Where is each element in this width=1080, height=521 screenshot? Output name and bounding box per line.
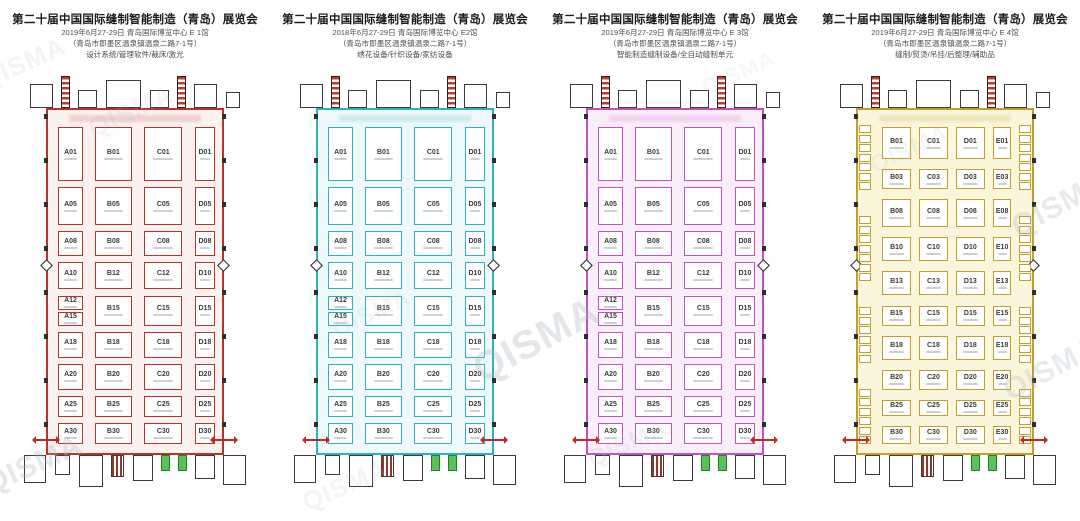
booth-subtext (104, 279, 123, 281)
booth-row: A10B12C12D10 (328, 262, 485, 289)
booth-subtext (423, 437, 443, 439)
booth-C05: C05 (144, 187, 182, 225)
booth-code: E03 (996, 174, 1008, 181)
booth-code: C08 (927, 208, 940, 215)
booth-cell: A18 (328, 332, 352, 358)
booth-B18: B18 (882, 336, 910, 360)
booth-B03: B03 (882, 169, 910, 189)
booth-code: B15 (647, 305, 660, 312)
booth-code: A08 (334, 238, 347, 245)
booth-code: B08 (377, 238, 390, 245)
booth-code: B30 (377, 428, 390, 435)
small-booth-cell (859, 182, 871, 190)
booth-code: D25 (469, 401, 482, 408)
booth-subtext (693, 314, 713, 316)
booth-subtext (740, 279, 750, 281)
booth-code: B08 (890, 208, 903, 215)
booth-cell: D18 (465, 332, 485, 358)
booth-subtext (644, 158, 663, 160)
booth-cell: C15 (684, 296, 722, 326)
booth-row: A18B18C18D18 (598, 332, 755, 358)
service-room (106, 80, 142, 108)
service-room (1033, 455, 1055, 485)
booth-B25: B25 (635, 396, 672, 417)
small-booth-cell (1019, 235, 1031, 243)
booth-subtext (998, 147, 1007, 149)
booth-cell: D18 (195, 332, 215, 358)
booth-subtext (926, 438, 940, 440)
booth-row: B30C30D30E30 (882, 426, 1011, 444)
service-room (618, 90, 637, 108)
booth-cell: A01 (58, 127, 82, 181)
booth-subtext (470, 158, 480, 160)
panel-address: （青岛市即墨区温泉镇温泉二路7-1号） (7, 40, 264, 50)
small-booth-cell (1019, 182, 1031, 190)
booth-D05: D05 (735, 187, 755, 225)
booth-subtext (374, 279, 393, 281)
hall-panel-e1: 第二十届中国国际缝制智能制造（青岛）展览会 2019年6月27-29日 青岛国际… (0, 0, 270, 521)
booth-code: D05 (469, 201, 482, 208)
booth-cell: D05 (465, 187, 485, 225)
booth-D05: D05 (465, 187, 485, 225)
booth-D01: D01 (735, 127, 755, 181)
booth-cell: A20 (328, 364, 352, 390)
booth-cell: E15 (993, 306, 1011, 326)
elevator-room (448, 455, 457, 471)
booth-code: B20 (647, 371, 660, 378)
service-room (376, 80, 412, 108)
booth-B30: B30 (365, 423, 402, 444)
booth-subtext (470, 348, 480, 350)
service-room (734, 84, 757, 108)
service-room (735, 455, 755, 479)
booth-subtext (153, 314, 173, 316)
booth-cell: A08 (328, 231, 352, 256)
small-booth-cell (859, 235, 871, 243)
booth-cell: B08 (882, 199, 910, 227)
booth-cell: C30 (919, 426, 947, 444)
booth-subtext (604, 247, 616, 249)
booth-cell: D05 (195, 187, 215, 225)
booth-C30: C30 (684, 423, 722, 444)
booth-cell: E30 (993, 426, 1011, 444)
booth-subtext (644, 279, 663, 281)
booth-code: C30 (427, 428, 440, 435)
booth-subtext (104, 437, 123, 439)
small-booth-cell (1019, 154, 1031, 162)
booth-subtext (693, 437, 713, 439)
top-structure (30, 68, 241, 108)
booth-cell: A05 (58, 187, 82, 225)
booth-cell: B13 (882, 271, 910, 295)
booth-cell: A10 (58, 262, 82, 289)
booth-C30: C30 (414, 423, 452, 444)
booth-E20: E20 (993, 370, 1011, 390)
booth-cell: C01 (414, 127, 452, 181)
small-booth-cell (1019, 254, 1031, 262)
service-room (865, 455, 880, 475)
booth-cell: A18 (58, 332, 82, 358)
booth-cell: A12A15 (598, 296, 622, 326)
booth-code: B10 (890, 244, 903, 251)
small-booth-cell (859, 135, 871, 143)
small-booth-cell (859, 154, 871, 162)
booth-subtext (693, 247, 713, 249)
booth-cell: B03 (882, 169, 910, 189)
booth-subtext (200, 380, 210, 382)
booth-code: D30 (964, 429, 977, 436)
booth-D08: D08 (465, 231, 485, 256)
service-room (78, 90, 97, 108)
booth-subtext (374, 210, 393, 212)
booth-E13: E13 (993, 271, 1011, 295)
service-room (921, 455, 934, 477)
booth-code: D18 (199, 339, 212, 346)
booth-cell: B18 (635, 332, 672, 358)
booth-row: A12A15B15C15D15 (328, 296, 485, 326)
small-booth-cell (1019, 317, 1031, 325)
stairs-icon (447, 76, 456, 108)
booth-subtext (470, 410, 480, 412)
service-room (325, 455, 340, 475)
booth-subtext (926, 217, 940, 219)
booth-C18: C18 (414, 332, 452, 358)
booth-cell: E01 (993, 127, 1011, 159)
booth-B20: B20 (882, 370, 910, 390)
booth-subtext (64, 210, 76, 212)
booth-subtext (334, 247, 346, 249)
booth-B15: B15 (882, 306, 910, 326)
booth-D25: D25 (735, 396, 755, 417)
booth-code: D10 (199, 270, 212, 277)
booth-D18: D18 (956, 336, 984, 360)
service-room (496, 92, 511, 108)
booth-row: B20C20D20E20 (882, 370, 1011, 390)
booth-cell: B20 (95, 364, 132, 390)
stairs-icon (61, 76, 70, 108)
booth-subtext (963, 438, 977, 440)
elevator-room (178, 455, 187, 471)
booth-subtext (104, 348, 123, 350)
booth-code: A30 (64, 428, 77, 435)
booth-row: B18C18D18E18 (882, 336, 1011, 360)
booth-A20: A20 (328, 364, 352, 390)
booth-subtext (998, 183, 1007, 185)
booth-cell: B12 (365, 262, 402, 289)
booth-C12: C12 (144, 262, 182, 289)
booth-D05: D05 (195, 187, 215, 225)
small-booth-cell (1019, 398, 1031, 406)
booth-cell: E20 (993, 370, 1011, 390)
booth-cell: D18 (735, 332, 755, 358)
service-room (834, 455, 856, 483)
booth-subtext (423, 314, 443, 316)
small-booth-cell (1019, 417, 1031, 425)
booth-D20: D20 (735, 364, 755, 390)
booth-code: E30 (996, 429, 1008, 436)
booth-subtext (334, 210, 346, 212)
booth-code: D20 (469, 371, 482, 378)
small-booth-cell (859, 408, 871, 416)
booth-cell: A25 (328, 396, 352, 417)
booth-subtext (423, 279, 443, 281)
booth-subtext (693, 348, 713, 350)
elevator-room (971, 455, 980, 471)
booth-A10: A10 (328, 262, 352, 289)
booth-A25: A25 (58, 396, 82, 417)
service-room (493, 455, 515, 485)
booth-B05: B05 (95, 187, 132, 225)
panel-title: 第二十届中国国际缝制智能制造（青岛）展览会 (270, 13, 540, 27)
booth-cell: C10 (919, 237, 947, 261)
booth-row: A20B20C20D20 (598, 364, 755, 390)
small-booth-cell (1019, 135, 1031, 143)
booth-code: A15 (604, 313, 617, 320)
booth-cell: A10 (328, 262, 352, 289)
small-booth-cell (859, 355, 871, 363)
service-room (889, 455, 913, 487)
booth-subtext (926, 147, 940, 149)
wall-ticks-right (1032, 114, 1036, 449)
booth-cell: D08 (956, 199, 984, 227)
booth-A15: A15 (598, 312, 622, 326)
booth-B30: B30 (95, 423, 132, 444)
booth-code: E25 (996, 402, 1008, 409)
booth-code: C25 (427, 401, 440, 408)
service-room (595, 455, 610, 475)
hall-content: B01C01D01E01B03C03D03E03B08C08D08E08B10C… (858, 110, 1032, 453)
booth-cell: C13 (919, 271, 947, 295)
exhibition-hall: A01B01C01D01A05B05C05D05A08B08C08D08A10B… (46, 108, 224, 455)
bottom-structure (564, 455, 785, 505)
booth-code: E01 (996, 138, 1008, 145)
booth-code: B18 (107, 339, 120, 346)
booth-row: A10B12C12D10 (598, 262, 755, 289)
booth-cell: D08 (735, 231, 755, 256)
booth-cell: D15 (956, 306, 984, 326)
booth-E01: E01 (993, 127, 1011, 159)
wall-ticks-right (762, 114, 766, 449)
panel-address: （青岛市即墨区温泉镇温泉二路7-1号） (277, 40, 534, 50)
booth-subtext (604, 158, 616, 160)
entrance-arrow-left (845, 439, 867, 441)
panel-date-venue: 2018年6月27-29日 青岛国际博览中心 E2馆 (277, 29, 534, 39)
service-room (349, 455, 373, 487)
booth-cell: B12 (95, 262, 132, 289)
booth-A18: A18 (58, 332, 82, 358)
booth-cell: D08 (465, 231, 485, 256)
service-room (766, 92, 781, 108)
booth-subtext (926, 183, 940, 185)
booth-D30: D30 (956, 426, 984, 444)
booth-E25: E25 (993, 400, 1011, 416)
booth-cell: D25 (956, 400, 984, 416)
booth-subtext (64, 279, 76, 281)
service-room (465, 455, 485, 479)
booth-cell: A10 (598, 262, 622, 289)
booth-cell: C15 (414, 296, 452, 326)
booth-cell: E13 (993, 271, 1011, 295)
booth-cell: A18 (598, 332, 622, 358)
booth-cell: B30 (95, 423, 132, 444)
small-booth-cell (1019, 273, 1031, 281)
booth-cell: B20 (635, 364, 672, 390)
wall-ticks-right (222, 114, 226, 449)
booth-subtext (998, 411, 1007, 413)
booth-C25: C25 (684, 396, 722, 417)
panel-categories: 绣花设备/针织设备/家纺设备 (277, 51, 534, 61)
booth-cell: C30 (414, 423, 452, 444)
booth-D08: D08 (195, 231, 215, 256)
booth-C10: C10 (919, 237, 947, 261)
booth-cell: A25 (598, 396, 622, 417)
booth-row: A08B08C08D08 (58, 231, 215, 256)
booth-subtext (889, 319, 903, 321)
booth-code: B15 (107, 305, 120, 312)
strip-group (1019, 216, 1031, 281)
stairs-icon (331, 76, 340, 108)
booth-code: C18 (927, 342, 940, 349)
booth-code: B08 (647, 238, 660, 245)
service-room (1004, 84, 1027, 108)
booth-cell: C25 (414, 396, 452, 417)
booth-D18: D18 (735, 332, 755, 358)
booth-subtext (334, 306, 346, 308)
booth-A05: A05 (598, 187, 622, 225)
booth-cell: C18 (144, 332, 182, 358)
booth-cell: C05 (684, 187, 722, 225)
booth-code: D10 (469, 270, 482, 277)
booth-D01: D01 (195, 127, 215, 181)
booth-D10: D10 (735, 262, 755, 289)
booth-cell: B15 (882, 306, 910, 326)
booth-code: A01 (604, 149, 617, 156)
booth-row: B25C25D25E25 (882, 400, 1011, 416)
booth-subtext (423, 158, 443, 160)
booth-subtext (423, 210, 443, 212)
booth-D15: D15 (465, 296, 485, 326)
panel-categories: 智能制造缝制设备/全自动缝制单元 (547, 51, 804, 61)
booth-row: A12A15B15C15D15 (598, 296, 755, 326)
booth-C08: C08 (144, 231, 182, 256)
booth-code: B15 (377, 305, 390, 312)
booth-code: A01 (334, 149, 347, 156)
booth-row: B08C08D08E08 (882, 199, 1011, 227)
booth-code: B30 (890, 429, 903, 436)
small-booth-cell (1019, 355, 1031, 363)
small-booth-cell (859, 226, 871, 234)
booth-subtext (740, 348, 750, 350)
booth-code: A05 (604, 201, 617, 208)
booth-cell: E25 (993, 400, 1011, 416)
booth-subtext (740, 247, 750, 249)
panel-header: 第二十届中国国际缝制智能制造（青岛）展览会 2019年6月27-29日 青岛国际… (0, 0, 270, 60)
booth-code: A20 (334, 371, 347, 378)
booth-subtext (998, 319, 1007, 321)
booth-A20: A20 (598, 364, 622, 390)
booth-B15: B15 (95, 296, 132, 326)
booth-cell: C08 (414, 231, 452, 256)
booth-code: D30 (739, 428, 752, 435)
entrance-arrow-right (483, 439, 505, 441)
booth-code: B20 (107, 371, 120, 378)
booth-subtext (470, 380, 480, 382)
booth-code: B01 (647, 149, 660, 156)
booth-code: D25 (199, 401, 212, 408)
booth-code: B25 (107, 401, 120, 408)
hall-content: A01B01C01D01A05B05C05D05A08B08C08D08A10B… (318, 110, 492, 453)
small-booth-cell (859, 398, 871, 406)
booth-subtext (963, 383, 977, 385)
booth-code: D05 (199, 201, 212, 208)
booth-code: B15 (890, 310, 903, 317)
booth-A25: A25 (598, 396, 622, 417)
booth-code: A18 (64, 339, 77, 346)
booth-cell: C01 (144, 127, 182, 181)
booth-code: D20 (739, 371, 752, 378)
booth-C25: C25 (919, 400, 947, 416)
booth-cell: D20 (956, 370, 984, 390)
booth-code: D10 (964, 244, 977, 251)
booth-cell: A01 (328, 127, 352, 181)
booth-A12: A12 (58, 296, 82, 310)
top-structure (840, 68, 1051, 108)
booth-row: A30B30C30D30 (328, 423, 485, 444)
booth-B08: B08 (365, 231, 402, 256)
booth-cell: C12 (144, 262, 182, 289)
booth-grid: A01B01C01D01A05B05C05D05A08B08C08D08A10B… (598, 127, 755, 444)
booth-code: C08 (157, 238, 170, 245)
booth-code: A25 (64, 401, 77, 408)
booth-subtext (374, 348, 393, 350)
booth-subtext (693, 158, 713, 160)
booth-subtext (693, 210, 713, 212)
panel-header: 第二十届中国国际缝制智能制造（青岛）展览会 2019年6月27-29日 青岛国际… (540, 0, 810, 60)
booth-E10: E10 (993, 237, 1011, 261)
booth-code: A18 (334, 339, 347, 346)
booth-D10: D10 (195, 262, 215, 289)
booth-code: C20 (697, 371, 710, 378)
booth-code: B20 (890, 374, 903, 381)
booth-subtext (604, 437, 616, 439)
booth-cell: B12 (635, 262, 672, 289)
booth-row: A30B30C30D30 (598, 423, 755, 444)
booth-cell: B15 (635, 296, 672, 326)
booth-code: C10 (927, 244, 940, 251)
booth-B18: B18 (365, 332, 402, 358)
booth-subtext (64, 322, 76, 324)
booth-E15: E15 (993, 306, 1011, 326)
booth-code: A25 (334, 401, 347, 408)
booth-cell: D18 (956, 336, 984, 360)
service-room (1005, 455, 1025, 479)
booth-subtext (604, 410, 616, 412)
booth-cell: B15 (95, 296, 132, 326)
booth-code: A08 (604, 238, 617, 245)
booth-code: C25 (157, 401, 170, 408)
booth-C12: C12 (414, 262, 452, 289)
booth-subtext (153, 210, 173, 212)
booth-subtext (889, 253, 903, 255)
booth-cell: B10 (882, 237, 910, 261)
booth-B30: B30 (882, 426, 910, 444)
booth-code: A25 (604, 401, 617, 408)
booth-B15: B15 (635, 296, 672, 326)
booth-subtext (998, 287, 1007, 289)
booth-subtext (963, 411, 977, 413)
booth-code: D08 (469, 238, 482, 245)
booth-cell: D25 (465, 396, 485, 417)
